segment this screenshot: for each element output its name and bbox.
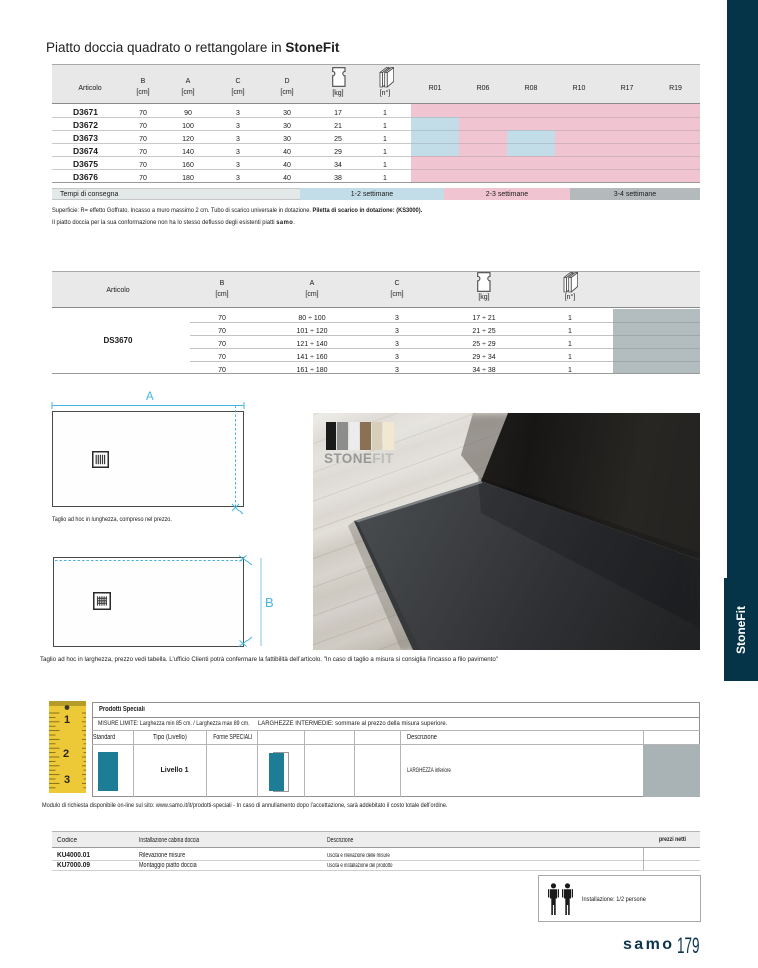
svg-text:1: 1 — [64, 714, 70, 726]
svg-text:2: 2 — [63, 748, 69, 760]
svg-text:3: 3 — [64, 774, 70, 786]
